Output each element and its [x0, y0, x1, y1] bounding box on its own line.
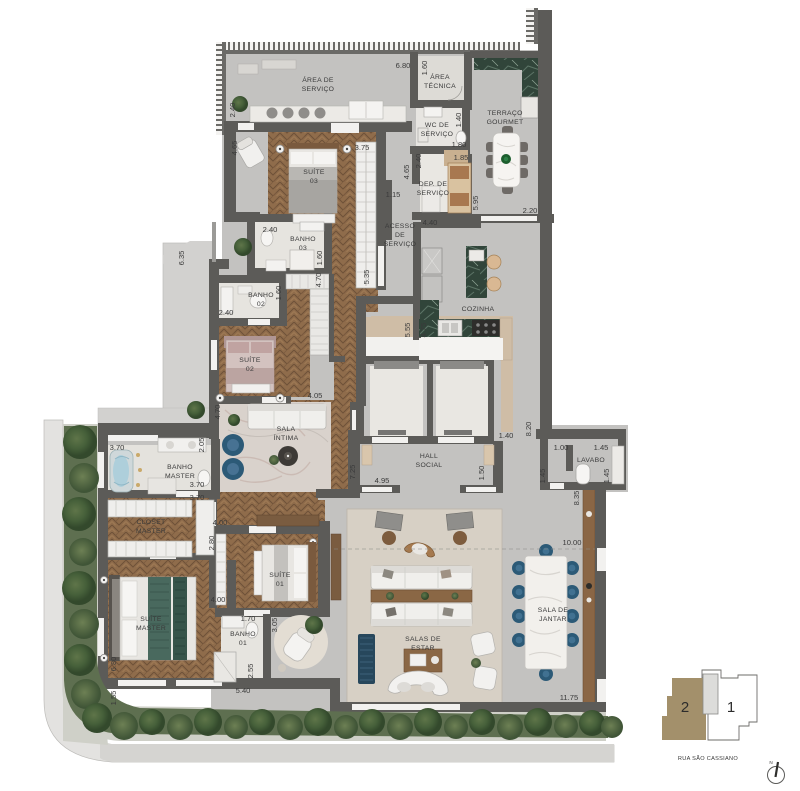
svg-text:10.00: 10.00 [562, 538, 581, 547]
svg-text:MASTER: MASTER [136, 528, 166, 535]
svg-text:BANHO: BANHO [167, 464, 193, 471]
svg-text:JANTAR: JANTAR [539, 616, 567, 623]
svg-text:ACESSO: ACESSO [385, 223, 415, 230]
svg-text:1.50: 1.50 [477, 466, 486, 481]
svg-text:6.80: 6.80 [109, 657, 118, 672]
svg-text:SALA DE: SALA DE [538, 607, 569, 614]
svg-text:2.40: 2.40 [414, 154, 423, 169]
svg-text:2.55: 2.55 [246, 664, 255, 679]
svg-text:HALL: HALL [420, 453, 438, 460]
svg-text:01: 01 [239, 640, 247, 647]
svg-text:SERVIÇO: SERVIÇO [302, 86, 335, 93]
svg-text:03: 03 [310, 178, 318, 185]
svg-text:ÁREA: ÁREA [430, 72, 450, 81]
svg-text:4.00: 4.00 [211, 595, 226, 604]
svg-text:7.25: 7.25 [348, 465, 357, 480]
svg-text:5.40: 5.40 [236, 686, 251, 695]
svg-text:CLOSET: CLOSET [137, 519, 166, 526]
svg-text:1.45: 1.45 [538, 469, 547, 484]
svg-text:MASTER: MASTER [136, 625, 166, 632]
svg-text:4.00: 4.00 [213, 518, 228, 527]
svg-text:N: N [769, 760, 772, 765]
svg-text:1.45: 1.45 [594, 443, 609, 452]
svg-text:ÁREA DE: ÁREA DE [302, 75, 334, 84]
svg-text:1.00: 1.00 [554, 443, 569, 452]
svg-text:1.70: 1.70 [241, 614, 256, 623]
svg-text:SUÍTE: SUÍTE [269, 570, 291, 579]
svg-text:1: 1 [727, 699, 735, 716]
svg-text:SALAS DE: SALAS DE [405, 636, 441, 643]
svg-text:4.65: 4.65 [230, 141, 239, 156]
svg-text:6.80: 6.80 [396, 61, 411, 70]
svg-text:4.95: 4.95 [375, 476, 390, 485]
svg-text:3.75: 3.75 [355, 143, 370, 152]
svg-text:8.20: 8.20 [524, 422, 533, 437]
svg-text:SERVIÇO: SERVIÇO [417, 190, 450, 197]
svg-text:SUÍTE: SUÍTE [140, 614, 162, 623]
svg-text:2.05: 2.05 [197, 438, 206, 453]
svg-text:3.05: 3.05 [270, 618, 279, 633]
svg-text:TERRAÇO: TERRAÇO [487, 110, 522, 117]
svg-text:BANHO: BANHO [290, 236, 316, 243]
svg-text:3.70: 3.70 [190, 480, 205, 489]
svg-text:1.15: 1.15 [386, 190, 401, 199]
svg-text:4.70: 4.70 [314, 273, 323, 288]
svg-text:03: 03 [299, 245, 307, 252]
svg-text:2: 2 [681, 699, 689, 716]
svg-text:1.45: 1.45 [602, 469, 611, 484]
svg-text:4.75: 4.75 [419, 323, 428, 338]
svg-text:5.95: 5.95 [471, 196, 480, 211]
svg-text:1.80: 1.80 [452, 140, 467, 149]
svg-text:02: 02 [257, 301, 265, 308]
svg-text:1.60: 1.60 [420, 61, 429, 76]
svg-text:3.70: 3.70 [110, 443, 125, 452]
svg-text:4.05: 4.05 [308, 391, 323, 400]
svg-text:2.40: 2.40 [228, 103, 237, 118]
svg-text:01: 01 [276, 581, 284, 588]
svg-text:DE: DE [395, 232, 405, 239]
svg-text:6.35: 6.35 [177, 251, 186, 266]
svg-text:1.55: 1.55 [109, 691, 118, 706]
svg-text:WC DE: WC DE [425, 122, 449, 129]
svg-text:MASTER: MASTER [165, 473, 195, 480]
svg-text:1.40: 1.40 [499, 431, 514, 440]
svg-text:02: 02 [246, 366, 254, 373]
svg-text:1.40: 1.40 [454, 113, 463, 128]
svg-text:COZINHA: COZINHA [462, 306, 495, 313]
svg-text:SALA: SALA [277, 426, 296, 433]
svg-text:SERVIÇO: SERVIÇO [421, 131, 454, 138]
svg-text:5.55: 5.55 [403, 323, 412, 338]
svg-text:1.60: 1.60 [274, 286, 283, 301]
svg-text:BANHO: BANHO [230, 631, 256, 638]
svg-text:5.35: 5.35 [362, 270, 371, 285]
svg-text:1.60: 1.60 [315, 251, 324, 266]
svg-text:GOURMET: GOURMET [487, 119, 524, 126]
svg-text:2.20: 2.20 [523, 206, 538, 215]
svg-text:3.70: 3.70 [190, 493, 205, 502]
svg-text:ESTAR: ESTAR [411, 645, 435, 652]
svg-text:DEP. DE: DEP. DE [419, 181, 448, 188]
svg-text:RUA SÃO CASSIANO: RUA SÃO CASSIANO [678, 755, 738, 762]
svg-text:LAVABO: LAVABO [577, 457, 605, 464]
svg-text:4.65: 4.65 [402, 165, 411, 180]
svg-text:SERVIÇO: SERVIÇO [384, 241, 417, 248]
svg-text:11.75: 11.75 [560, 693, 578, 702]
svg-text:SOCIAL: SOCIAL [416, 462, 443, 469]
svg-text:1.85: 1.85 [454, 153, 469, 162]
svg-text:TÉCNICA: TÉCNICA [424, 81, 456, 90]
svg-text:BANHO: BANHO [248, 292, 274, 299]
svg-text:4.40: 4.40 [423, 218, 438, 227]
svg-text:8.35: 8.35 [572, 491, 581, 506]
svg-text:SUÍTE: SUÍTE [239, 355, 261, 364]
svg-text:ÍNTIMA: ÍNTIMA [274, 433, 299, 442]
svg-text:2.40: 2.40 [263, 225, 278, 234]
svg-text:SUÍTE: SUÍTE [303, 167, 325, 176]
svg-text:4.70: 4.70 [213, 405, 222, 420]
svg-text:2.40: 2.40 [219, 308, 234, 317]
svg-text:2.80: 2.80 [207, 536, 216, 551]
